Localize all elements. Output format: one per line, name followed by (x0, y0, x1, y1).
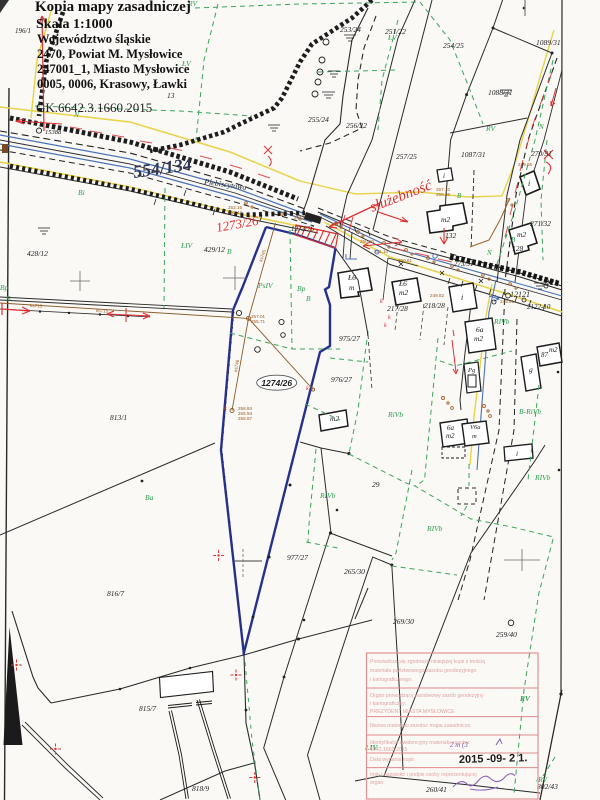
svg-text:k: k (384, 323, 387, 329)
svg-text:Data wydania kopii:: Data wydania kopii: (370, 757, 415, 763)
svg-text:273/31: 273/31 (454, 260, 473, 268)
svg-text:RIVb: RIVb (426, 524, 443, 533)
svg-text:materiału państwowego zasobu g: materiału państwowego zasobu geodezyjneg… (370, 668, 477, 674)
svg-text:1087/31: 1087/31 (461, 150, 486, 159)
svg-text:Kopia mapy zasadniczej: Kopia mapy zasadniczej (35, 0, 191, 15)
svg-text:i: i (516, 449, 518, 458)
svg-text:N: N (538, 123, 544, 131)
svg-text:m: m (472, 433, 477, 440)
svg-text:2470, Powiat M. Mysłowice: 2470, Powiat M. Mysłowice (37, 47, 183, 61)
svg-text:organ:: organ: (370, 780, 385, 786)
svg-text:270/31: 270/31 (531, 149, 552, 158)
svg-text:i kartograficzny:: i kartograficzny: (370, 701, 406, 707)
svg-text:Nazwa materiału zasobu: mapa z: Nazwa materiału zasobu: mapa zasadnicza (370, 723, 470, 729)
svg-text:B: B (227, 247, 232, 256)
svg-text:428/12: 428/12 (27, 249, 48, 258)
svg-text:255/24: 255/24 (308, 115, 329, 124)
svg-text:128: 128 (512, 244, 524, 253)
svg-text:Bp: Bp (0, 283, 9, 292)
svg-text:Ł6: Ł6 (398, 279, 407, 288)
svg-text:ŁIV: ŁIV (180, 241, 194, 250)
svg-text:259/40: 259/40 (496, 630, 517, 639)
svg-text:Województwo śląskie: Województwo śląskie (37, 32, 151, 46)
svg-text:N: N (486, 249, 492, 257)
svg-text:256/22: 256/22 (346, 121, 367, 130)
svg-text:Organ prowadzący państwowy zas: Organ prowadzący państwowy zasób geodezy… (370, 693, 484, 699)
svg-text:816/7: 816/7 (107, 589, 124, 598)
svg-text:RV: RV (485, 124, 496, 133)
svg-text:6642.1660.2015: 6642.1660.2015 (370, 747, 408, 753)
svg-text:1274/26: 1274/26 (261, 378, 292, 388)
svg-text:260/41: 260/41 (426, 785, 447, 794)
svg-text:815/7: 815/7 (139, 704, 156, 713)
svg-text:m2: m2 (446, 432, 455, 440)
svg-text:B: B (457, 192, 462, 200)
svg-text:Bi: Bi (78, 188, 85, 197)
svg-text:PREZYDENT MIASTA MYSŁOWICE: PREZYDENT MIASTA MYSŁOWICE (370, 709, 455, 715)
svg-text:RIVb: RIVb (493, 317, 510, 326)
svg-text:218/28: 218/28 (424, 301, 445, 310)
svg-text:RIVb: RIVb (319, 491, 336, 500)
svg-text:B: B (511, 236, 516, 244)
svg-text:ŁV: ŁV (387, 33, 398, 42)
svg-text:257/25: 257/25 (396, 152, 417, 161)
svg-text:1088/31: 1088/31 (488, 88, 513, 97)
svg-text:Ba: Ba (145, 493, 154, 502)
svg-text:253/24: 253/24 (340, 25, 361, 34)
svg-text:249.66: 249.66 (518, 162, 532, 167)
svg-text:813/1: 813/1 (110, 413, 127, 422)
svg-text:Pg: Pg (467, 367, 476, 374)
svg-text:6a: 6a (476, 325, 484, 334)
svg-text:429/12: 429/12 (204, 245, 225, 254)
svg-text:6a: 6a (447, 424, 455, 432)
svg-text:258.97: 258.97 (238, 416, 252, 421)
svg-text:m2: m2 (399, 288, 408, 297)
svg-text:i: i (528, 179, 530, 188)
svg-text:977/27: 977/27 (287, 553, 308, 562)
svg-text:Poświadcza się zgodność niniej: Poświadcza się zgodność niniejszej kopii… (370, 659, 485, 665)
svg-text:m: m (349, 283, 355, 292)
svg-text:B: B (306, 294, 311, 303)
svg-text:265/30: 265/30 (344, 567, 365, 576)
svg-text:V6a: V6a (470, 424, 480, 431)
svg-text:RIVb: RIVb (534, 473, 551, 482)
svg-text:252.44: 252.44 (228, 210, 242, 215)
svg-text:Skala 1:1000: Skala 1:1000 (36, 17, 113, 32)
svg-text:k: k (224, 406, 227, 412)
svg-text:RiVb: RiVb (387, 410, 403, 419)
svg-text:1089/31: 1089/31 (536, 38, 561, 47)
svg-text:B: B (6, 294, 11, 303)
svg-text:249.82: 249.82 (430, 293, 444, 298)
svg-text:ks715: ks715 (96, 308, 109, 314)
svg-text:250.90: 250.90 (360, 239, 374, 244)
svg-text:2015 -09- 2 1.: 2015 -09- 2 1. (459, 752, 528, 766)
svg-text:29: 29 (372, 480, 380, 489)
svg-text:m2: m2 (330, 414, 339, 423)
svg-text:248.91: 248.91 (500, 299, 514, 304)
svg-text:976/27: 976/27 (331, 375, 352, 384)
svg-text:975/27: 975/27 (339, 334, 360, 343)
svg-text:196/1: 196/1 (15, 27, 31, 35)
svg-text:ks715: ks715 (30, 303, 43, 309)
svg-text:132: 132 (445, 231, 457, 240)
svg-text:255.71: 255.71 (251, 319, 265, 324)
svg-text:RV: RV (519, 694, 531, 703)
svg-text:247001_1, Miasto Mysłowice: 247001_1, Miasto Mysłowice (37, 62, 190, 76)
svg-text:13: 13 (167, 91, 175, 100)
svg-text:k: k (380, 299, 383, 305)
svg-text:254/25: 254/25 (443, 41, 464, 50)
svg-text:12121: 12121 (510, 290, 530, 299)
svg-text:i kartograficznego:: i kartograficznego: (370, 677, 412, 683)
svg-text:1273/26: 1273/26 (291, 225, 314, 233)
svg-text:k: k (388, 315, 391, 321)
svg-text:256.36: 256.36 (436, 192, 450, 197)
svg-text:2122-10: 2122-10 (527, 303, 551, 311)
svg-text:1538a: 1538a (45, 129, 61, 136)
svg-text:0005, 0006, Krasowy, Ławki: 0005, 0006, Krasowy, Ławki (37, 77, 188, 91)
svg-text:Bp: Bp (297, 284, 306, 293)
svg-text:87: 87 (541, 351, 549, 359)
svg-text:PsIV: PsIV (257, 281, 274, 290)
svg-text:2 m (3: 2 m (3 (450, 741, 468, 749)
svg-text:818/9: 818/9 (192, 784, 209, 793)
svg-text:Imię i nazwisko i podpis osoby: Imię i nazwisko i podpis osoby reprezent… (370, 772, 477, 778)
svg-text:m2: m2 (474, 334, 483, 343)
svg-text:g: g (529, 365, 533, 374)
svg-text:Ł6: Ł6 (347, 273, 356, 282)
svg-text:GK.6642.3.1660.2015: GK.6642.3.1660.2015 (36, 100, 152, 115)
svg-text:m2: m2 (441, 215, 450, 224)
svg-text:m2: m2 (517, 230, 526, 239)
svg-text:k: k (306, 386, 309, 392)
svg-text:/RV: /RV (535, 775, 549, 784)
svg-text:i: i (461, 293, 463, 302)
svg-text:B-RiVb: B-RiVb (519, 407, 541, 416)
svg-text:m2: m2 (549, 346, 558, 354)
svg-text:271/32: 271/32 (530, 219, 551, 228)
svg-text:i: i (443, 172, 445, 180)
svg-text:269/30: 269/30 (393, 617, 414, 626)
